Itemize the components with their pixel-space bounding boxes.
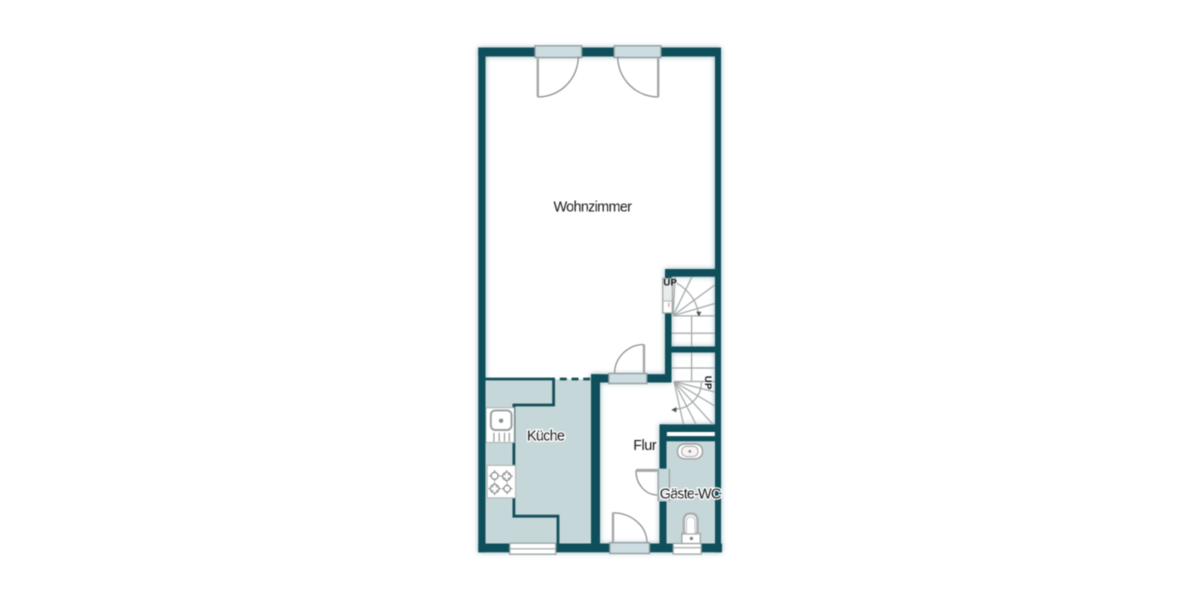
- svg-text:UP: UP: [663, 277, 677, 288]
- svg-text:Küche: Küche: [527, 429, 565, 445]
- svg-text:Gäste-WC: Gäste-WC: [660, 486, 722, 502]
- svg-text:Flur: Flur: [633, 438, 657, 454]
- svg-text:Wohnzimmer: Wohnzimmer: [554, 200, 633, 216]
- svg-text:UP: UP: [702, 376, 713, 390]
